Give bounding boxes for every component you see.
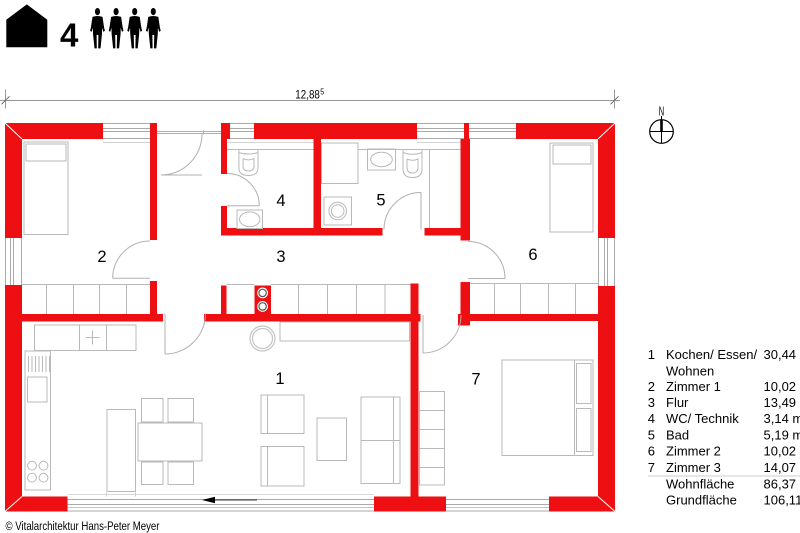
- svg-text:3: 3: [276, 248, 285, 266]
- svg-text:Bad: Bad: [666, 427, 689, 442]
- svg-text:106,11 m²: 106,11 m²: [764, 493, 800, 508]
- svg-text:5: 5: [648, 427, 655, 442]
- svg-text:12,88: 12,88: [295, 88, 320, 102]
- svg-text:86,37 m²: 86,37 m²: [764, 476, 800, 491]
- svg-text:Wohnfläche: Wohnfläche: [666, 476, 734, 491]
- svg-text:WC/ Technik: WC/ Technik: [666, 411, 739, 426]
- svg-text:14,07 m²: 14,07 m²: [764, 460, 800, 475]
- svg-text:1: 1: [275, 370, 284, 388]
- svg-text:6: 6: [528, 246, 537, 264]
- svg-text:7: 7: [471, 371, 480, 389]
- svg-text:Wohnen: Wohnen: [666, 363, 714, 378]
- svg-text:4: 4: [648, 411, 655, 426]
- svg-text:Zimmer 1: Zimmer 1: [666, 379, 721, 394]
- svg-text:3,14 m²: 3,14 m²: [764, 411, 800, 426]
- svg-text:2: 2: [97, 248, 106, 266]
- svg-text:3: 3: [648, 395, 655, 410]
- svg-text:Kochen/ Essen/: Kochen/ Essen/: [666, 347, 757, 362]
- svg-text:5,19 m²: 5,19 m²: [764, 427, 800, 442]
- svg-text:1: 1: [648, 347, 655, 362]
- svg-text:10,02 m²: 10,02 m²: [764, 444, 800, 459]
- svg-text:6: 6: [648, 444, 655, 459]
- svg-text:13,49 m²: 13,49 m²: [764, 395, 800, 410]
- svg-text:7: 7: [648, 460, 655, 475]
- svg-text:Zimmer 2: Zimmer 2: [666, 444, 721, 459]
- svg-text:4: 4: [60, 16, 79, 53]
- svg-text:5: 5: [376, 192, 385, 210]
- svg-text:Zimmer 3: Zimmer 3: [666, 460, 721, 475]
- svg-text:30,44 m²: 30,44 m²: [764, 347, 800, 362]
- svg-text:4: 4: [276, 192, 285, 210]
- svg-text:5: 5: [320, 86, 324, 96]
- svg-text:© Vitalarchitektur Hans-Peter: © Vitalarchitektur Hans-Peter Meyer: [6, 519, 160, 533]
- svg-text:2: 2: [648, 379, 655, 394]
- svg-text:10,02 m²: 10,02 m²: [764, 379, 800, 394]
- svg-text:Flur: Flur: [666, 395, 689, 410]
- svg-text:Grundfläche: Grundfläche: [666, 493, 737, 508]
- svg-text:N: N: [659, 105, 664, 119]
